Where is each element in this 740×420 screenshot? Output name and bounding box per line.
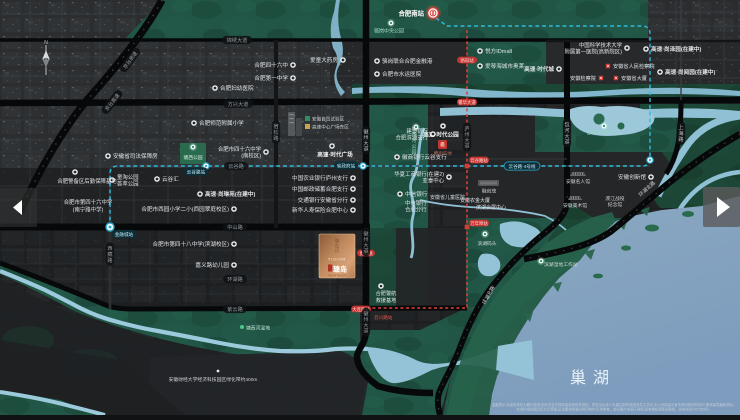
svg-text:云谷路: 云谷路 bbox=[228, 162, 244, 170]
svg-text:合肥滨湖支行: 合肥滨湖支行 bbox=[396, 134, 429, 142]
svg-text:TISIOR REALTY: TISIOR REALTY bbox=[327, 274, 347, 278]
svg-text:爱童大药房: 爱童大药房 bbox=[310, 56, 338, 64]
svg-text:合肥警备区后勤保障基地: 合肥警备区后勤保障基地 bbox=[57, 177, 117, 185]
svg-text:徽州大道: 徽州大道 bbox=[363, 309, 369, 334]
svg-text:安徽省人民检察院: 安徽省人民检察院 bbox=[613, 62, 655, 70]
svg-text:合肥警航: 合肥警航 bbox=[376, 289, 398, 297]
svg-text:合肥市第四十八中学(滨湖校区): 合肥市第四十八中学(滨湖校区) bbox=[153, 240, 230, 248]
svg-text:云谷路·4号线: 云谷路·4号线 bbox=[508, 163, 535, 170]
svg-text:罍: 罍 bbox=[440, 142, 445, 149]
svg-text:杏福漫运动公园: 杏福漫运动公园 bbox=[586, 129, 620, 136]
svg-text:合肥市水运医院: 合肥市水运医院 bbox=[382, 70, 422, 78]
svg-text:云谷路站: 云谷路站 bbox=[187, 169, 206, 176]
svg-text:安徽检察院: 安徽检察院 bbox=[570, 74, 597, 82]
svg-text:爱琴海城市奥莱: 爱琴海城市奥莱 bbox=[485, 62, 525, 70]
svg-text:合肥师范附属小学: 合肥师范附属小学 bbox=[199, 119, 244, 127]
svg-text:紫云路: 紫云路 bbox=[227, 305, 243, 313]
svg-text:新华人寿保险合肥中心: 新华人寿保险合肥中心 bbox=[292, 206, 348, 214]
svg-text:巢湖: 巢湖 bbox=[570, 369, 616, 387]
svg-text:悦方IDmall: 悦方IDmall bbox=[485, 47, 512, 55]
svg-text:庐州大道: 庐州大道 bbox=[464, 124, 469, 149]
svg-text:安徽农金大厦: 安徽农金大厦 bbox=[460, 197, 490, 204]
svg-text:合肥妇幼医院: 合肥妇幼医院 bbox=[220, 84, 254, 92]
svg-text:高速·时代广场: 高速·时代广场 bbox=[317, 151, 353, 159]
svg-text:徽州大道: 徽州大道 bbox=[363, 229, 369, 254]
svg-text:安徽自贸试验区: 安徽自贸试验区 bbox=[312, 116, 345, 123]
svg-text:上海路: 上海路 bbox=[678, 123, 684, 143]
svg-text:环湖路: 环湖路 bbox=[227, 275, 243, 283]
svg-text:TISIOR: TISIOR bbox=[328, 257, 346, 262]
svg-text:嘉义路幼儿园: 嘉义路幼儿园 bbox=[195, 261, 229, 269]
svg-text:高速中心广场东区: 高速中心广场东区 bbox=[312, 124, 349, 131]
svg-text:荟萃公园: 荟萃公园 bbox=[117, 180, 139, 188]
svg-text:安徽美术馆: 安徽美术馆 bbox=[563, 202, 587, 209]
svg-text:方兴大道: 方兴大道 bbox=[228, 100, 249, 108]
svg-text:云谷汇: 云谷汇 bbox=[162, 175, 179, 183]
svg-text:安徽名人馆: 安徽名人馆 bbox=[566, 178, 590, 185]
svg-text:锦绣大道: 锦绣大道 bbox=[227, 36, 248, 44]
svg-text:万年埠站: 万年埠站 bbox=[470, 220, 488, 227]
svg-text:中国农业银行庐州支行: 中国农业银行庐州支行 bbox=[292, 174, 348, 182]
svg-text:徽州大道: 徽州大道 bbox=[363, 127, 369, 152]
svg-text:滨湖码头: 滨湖码头 bbox=[477, 240, 496, 247]
svg-text:安徽创新馆: 安徽创新馆 bbox=[618, 173, 646, 181]
svg-text:建设银行: 建设银行 bbox=[406, 127, 428, 135]
svg-text:本资料相关图示仅为示意图,区位图非精准比例尺制作,仅供参考。: 本资料相关图示仅为示意图,区位图非精准比例尺制作,仅供参考。部分图片来源于网络,… bbox=[516, 407, 711, 412]
svg-text:合肥分行: 合肥分行 bbox=[405, 206, 427, 214]
svg-text:骆岗联合合肥金融港: 骆岗联合合肥金融港 bbox=[382, 57, 433, 65]
svg-text:包河大道: 包河大道 bbox=[564, 120, 569, 145]
svg-text:N: N bbox=[44, 40, 48, 46]
svg-text:高速·尚琳苑(在建中): 高速·尚琳苑(在建中) bbox=[205, 190, 255, 198]
svg-text:徽商银行云谷支行: 徽商银行云谷支行 bbox=[402, 153, 447, 161]
svg-text:渡江战役: 渡江战役 bbox=[605, 195, 624, 202]
svg-text:合肥第一中学: 合肥第一中学 bbox=[254, 74, 288, 82]
svg-text:中信银行: 中信银行 bbox=[405, 199, 427, 207]
svg-text:金融城站: 金融城站 bbox=[115, 231, 134, 238]
svg-text:交通银行安徽省分行: 交通银行安徽省分行 bbox=[298, 196, 349, 204]
svg-text:(南校区): (南校区) bbox=[241, 152, 261, 160]
svg-text:宿松路: 宿松路 bbox=[273, 122, 279, 142]
svg-text:繁华大道: 繁华大道 bbox=[458, 99, 476, 106]
svg-text:温馨提示:本宣传资料为要约邀请,相关内容不排除因政府相关规划: 温馨提示:本宣传资料为要约邀请,相关内容不排除因政府相关规划、规定及出卖人未能控… bbox=[492, 402, 737, 407]
svg-text:融创茂: 融创茂 bbox=[482, 188, 497, 195]
svg-text:合肥市西园小学二小(西园翠庭校区): 合肥市西园小学二小(西园翠庭校区) bbox=[141, 205, 229, 213]
svg-text:瑭岛: 瑭岛 bbox=[333, 265, 347, 274]
svg-text:中信银行: 中信银行 bbox=[405, 190, 428, 198]
svg-text:中国科学技术大学: 中国科学技术大学 bbox=[579, 41, 623, 49]
svg-text:高速·时代公园: 高速·时代公园 bbox=[423, 131, 459, 139]
svg-text:附属第一医院(高新院区): 附属第一医院(高新院区) bbox=[565, 48, 623, 56]
svg-text:华夏工商银行(在建2): 华夏工商银行(在建2) bbox=[394, 170, 444, 178]
svg-text:安徽省司法保障房: 安徽省司法保障房 bbox=[113, 152, 158, 160]
svg-text:安徽财经大学经济科技园区绿化带约400m: 安徽财经大学经济科技园区绿化带约400m bbox=[169, 376, 258, 383]
svg-text:中国邮政储蓄合肥支行: 中国邮政储蓄合肥支行 bbox=[292, 185, 348, 193]
svg-text:合肥四十六中: 合肥四十六中 bbox=[254, 61, 288, 69]
svg-text:高速·尚阅园(在建中): 高速·尚阅园(在建中) bbox=[665, 68, 715, 76]
svg-text:滨湖湿地工作站: 滨湖湿地工作站 bbox=[544, 261, 578, 268]
svg-text:合肥南站: 合肥南站 bbox=[397, 9, 424, 18]
svg-text:塘西河湿地: 塘西河湿地 bbox=[246, 325, 270, 332]
svg-text:骆岗中央公园: 骆岗中央公园 bbox=[374, 28, 404, 35]
svg-text:(南宁路中学): (南宁路中学) bbox=[73, 206, 104, 214]
svg-text:省政府站: 省政府站 bbox=[337, 163, 356, 170]
svg-text:高速·尚泽园(在建中): 高速·尚泽园(在建中) bbox=[651, 45, 701, 53]
svg-text:云川路站: 云川路站 bbox=[374, 314, 393, 321]
svg-text:高速·时代城: 高速·时代城 bbox=[524, 65, 554, 73]
svg-text:亚泰中心: 亚泰中心 bbox=[422, 177, 444, 185]
svg-text:骆岗站: 骆岗站 bbox=[460, 57, 474, 64]
svg-text:合肥市四十六中学: 合肥市四十六中学 bbox=[218, 145, 262, 153]
svg-text:合肥市第四十六中学: 合肥市第四十六中学 bbox=[64, 198, 113, 206]
svg-text:中山路: 中山路 bbox=[227, 223, 243, 231]
svg-text:童淘公园: 童淘公园 bbox=[117, 173, 139, 181]
svg-text:西藏路: 西藏路 bbox=[107, 245, 113, 264]
svg-text:滨湖会展中心: 滨湖会展中心 bbox=[476, 204, 506, 211]
svg-text:救援基地: 救援基地 bbox=[376, 296, 397, 304]
svg-text:塘西公园: 塘西公园 bbox=[183, 154, 202, 161]
svg-text:安徽省大厦: 安徽省大厦 bbox=[621, 74, 647, 82]
svg-text:纪念馆: 纪念馆 bbox=[608, 201, 623, 208]
svg-text:云谷路站: 云谷路站 bbox=[470, 157, 488, 164]
svg-text:印: 印 bbox=[335, 248, 340, 255]
